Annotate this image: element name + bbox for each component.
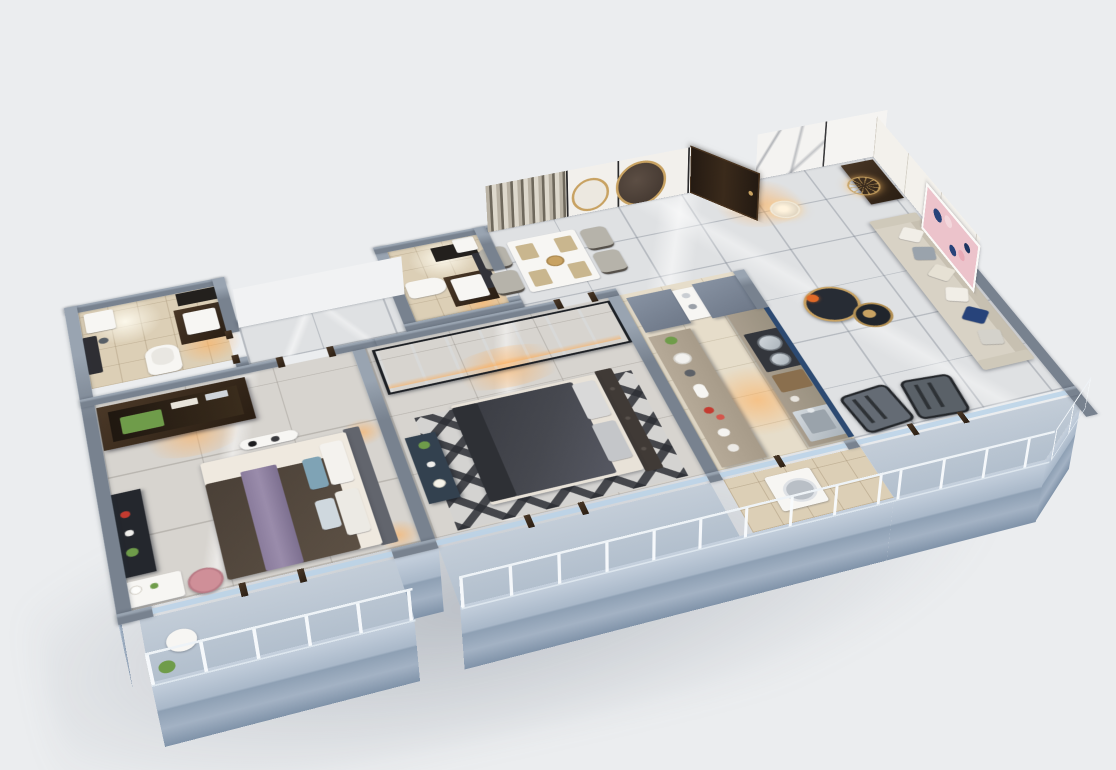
scene: [0, 0, 1116, 770]
door-handle: [748, 190, 753, 196]
decor-plant: [125, 547, 139, 558]
wall-plate-white: [571, 175, 609, 215]
sofa-cushion: [912, 247, 937, 260]
wardrobe-interior: [108, 385, 244, 442]
console-tray: [248, 440, 258, 447]
apartment-floor-plan: [51, 138, 1116, 739]
desk-lamp: [129, 584, 143, 596]
decor-white: [124, 529, 134, 537]
placemat: [567, 261, 593, 279]
wall-trim: [687, 147, 690, 193]
door-frame-post: [231, 354, 240, 364]
shelf-bowl: [681, 292, 692, 299]
placemat: [553, 235, 578, 253]
placemat: [515, 243, 540, 261]
render-canvas: [0, 0, 1116, 770]
wall-trim: [566, 171, 569, 217]
centerpiece-vase: [544, 254, 567, 268]
placemat: [528, 269, 553, 287]
